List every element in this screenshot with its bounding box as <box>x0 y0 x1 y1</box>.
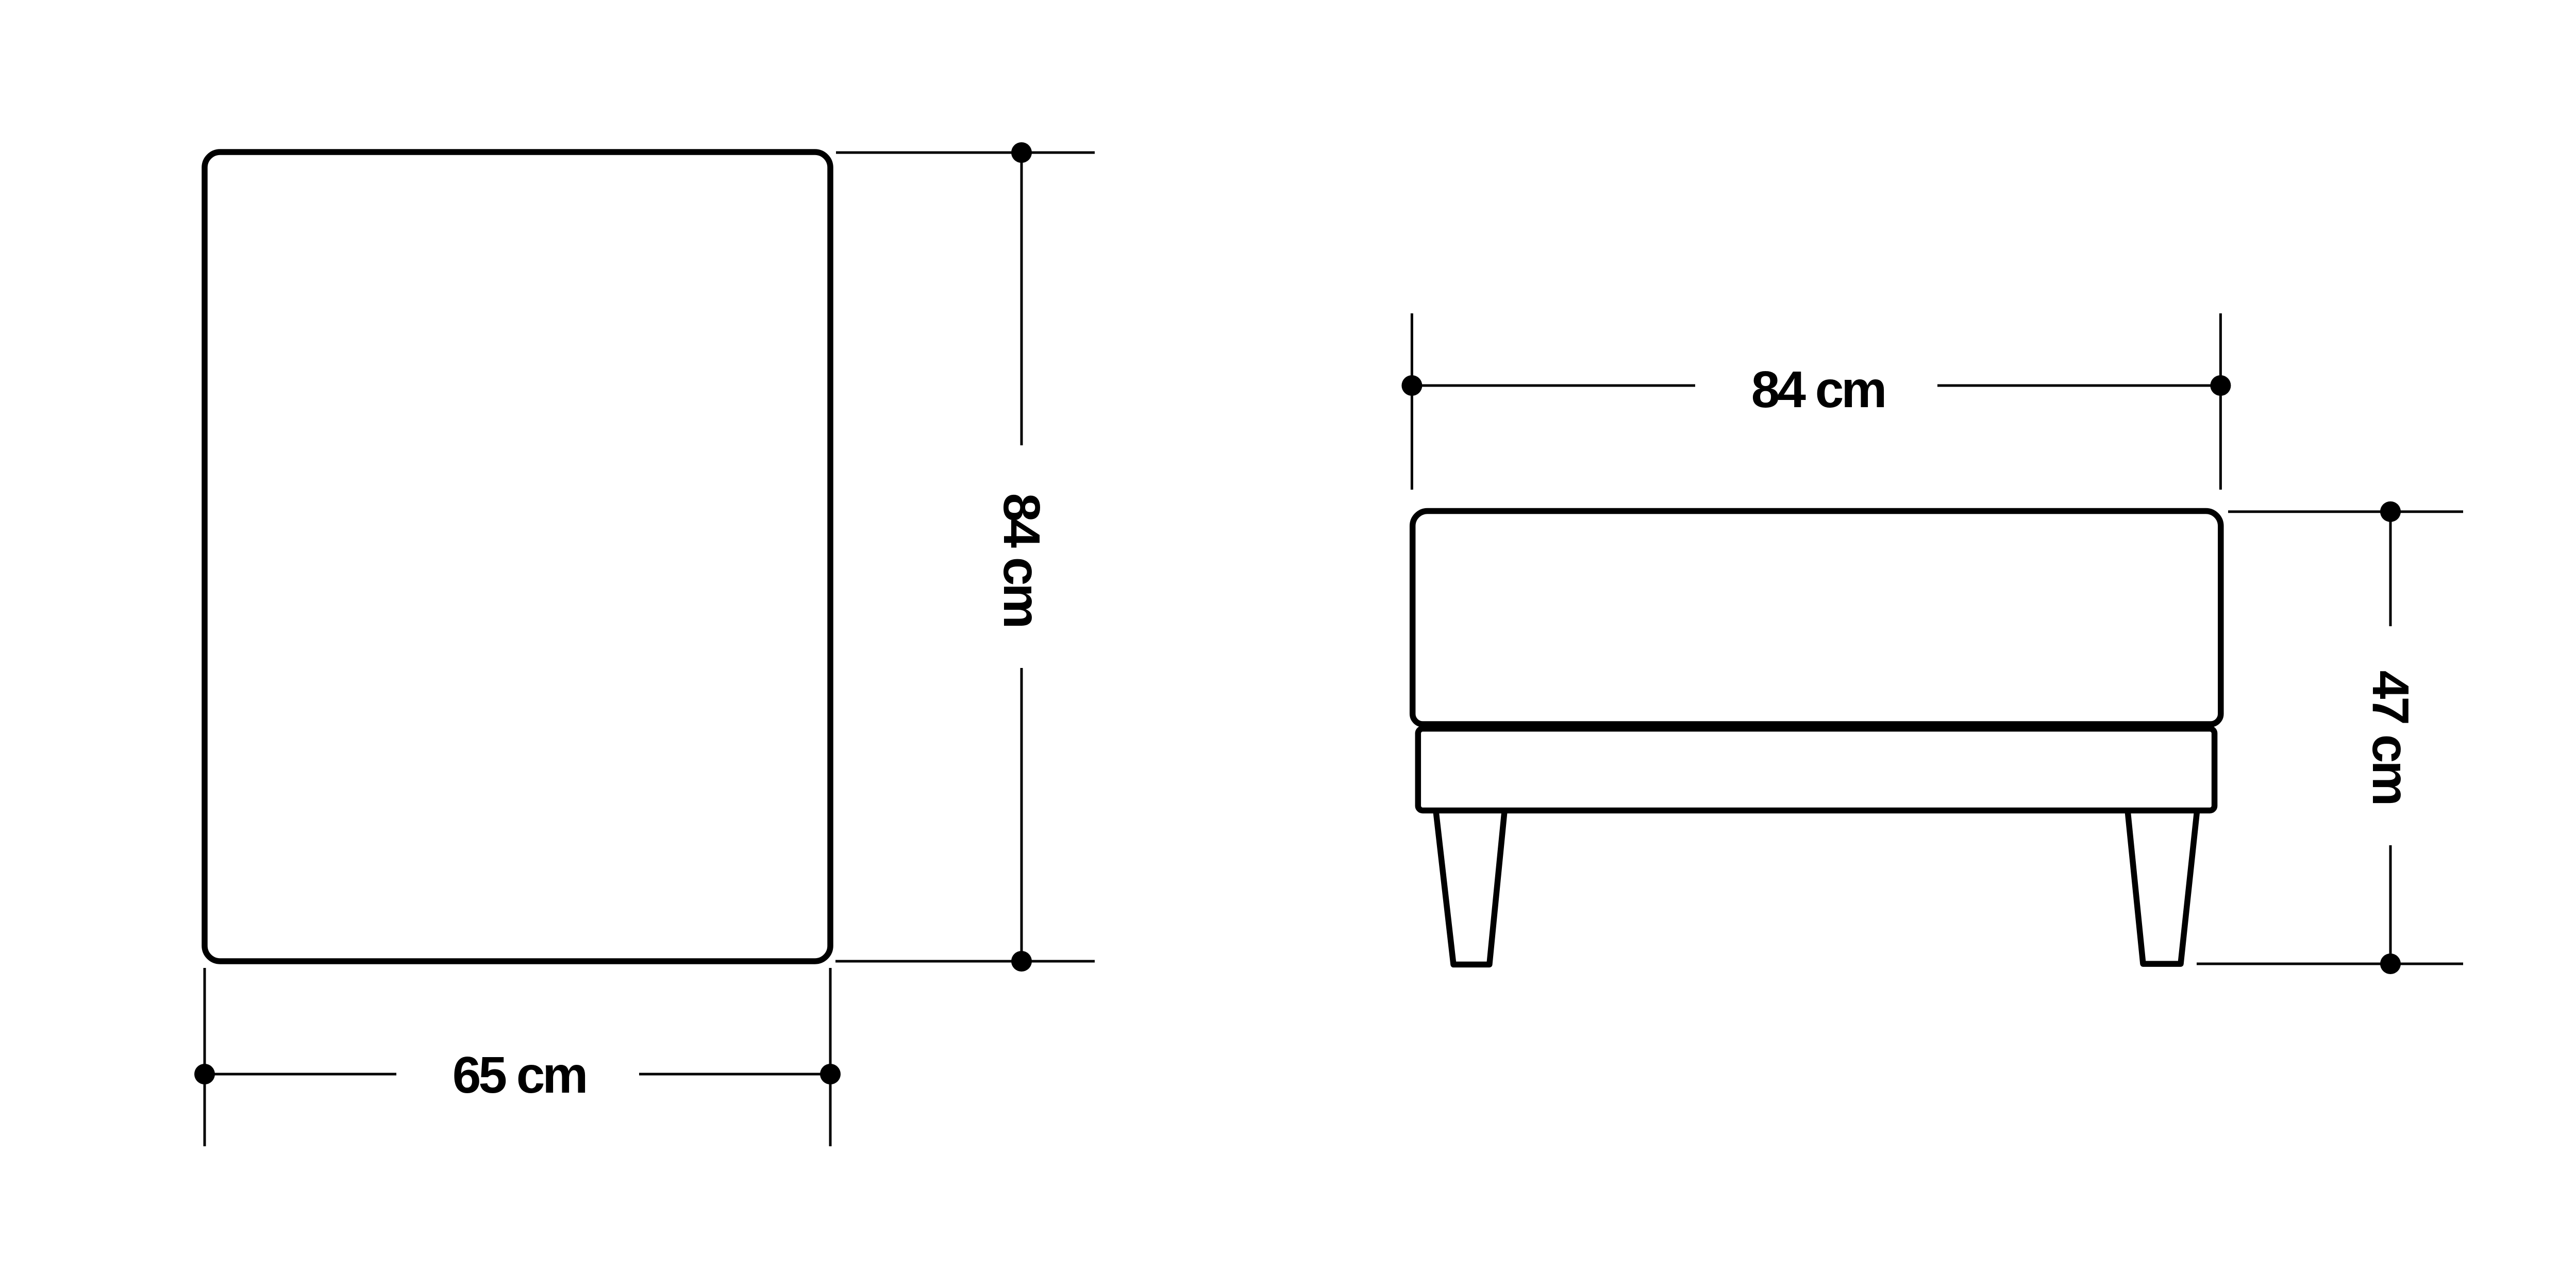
svg-text:84 cm: 84 cm <box>1751 361 1885 419</box>
svg-text:84 cm: 84 cm <box>993 493 1050 627</box>
svg-text:65 cm: 65 cm <box>453 1046 586 1104</box>
svg-text:47 cm: 47 cm <box>2362 671 2419 804</box>
